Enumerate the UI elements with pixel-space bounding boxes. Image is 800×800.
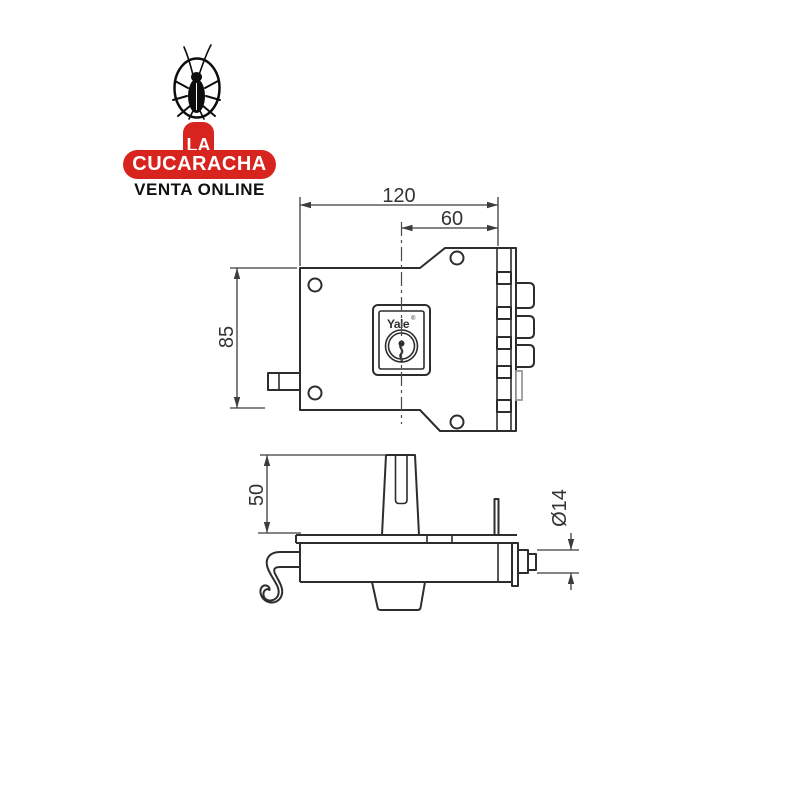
screw-slot bbox=[497, 400, 511, 412]
latch-bolt-gray bbox=[516, 371, 522, 400]
latch-lever bbox=[260, 552, 300, 603]
front-view: Yale ® bbox=[268, 222, 534, 431]
dim-bolt-diameter: Ø14 bbox=[537, 489, 579, 590]
case-body bbox=[300, 543, 512, 582]
side-view bbox=[260, 455, 536, 610]
follower-tower bbox=[382, 455, 419, 535]
cover-plate bbox=[296, 535, 517, 543]
dim-cylinder-offset: 60 bbox=[402, 208, 499, 231]
screw-slot bbox=[497, 366, 511, 378]
deadbolt bbox=[516, 283, 534, 308]
product-image: LA CUCARACHA VENTA ONLINE bbox=[0, 0, 800, 800]
spring-pin bbox=[495, 499, 499, 535]
deadbolt bbox=[516, 345, 534, 367]
yale-brand-text: Yale bbox=[387, 317, 410, 331]
cylinder-boss bbox=[372, 582, 425, 610]
dim-body-width-label: 120 bbox=[382, 185, 415, 207]
screw-hole bbox=[451, 416, 464, 429]
registered-mark: ® bbox=[411, 315, 416, 322]
screw-slot bbox=[497, 307, 511, 319]
dim-follower-height: 50 bbox=[246, 455, 385, 533]
screw-slot bbox=[497, 272, 511, 284]
screw-hole bbox=[309, 387, 322, 400]
screw-hole bbox=[309, 279, 322, 292]
dim-cylinder-offset-label: 60 bbox=[441, 208, 463, 230]
slide-knob bbox=[268, 373, 300, 390]
dim-body-height-label: 85 bbox=[216, 326, 238, 348]
bolt-side bbox=[518, 550, 536, 573]
dim-bolt-diameter-label: Ø14 bbox=[549, 489, 571, 527]
technical-drawing: Yale ® 120 bbox=[0, 0, 800, 800]
deadbolt bbox=[516, 316, 534, 338]
dim-follower-height-label: 50 bbox=[246, 484, 268, 506]
screw-slot bbox=[497, 337, 511, 349]
screw-hole bbox=[451, 252, 464, 265]
